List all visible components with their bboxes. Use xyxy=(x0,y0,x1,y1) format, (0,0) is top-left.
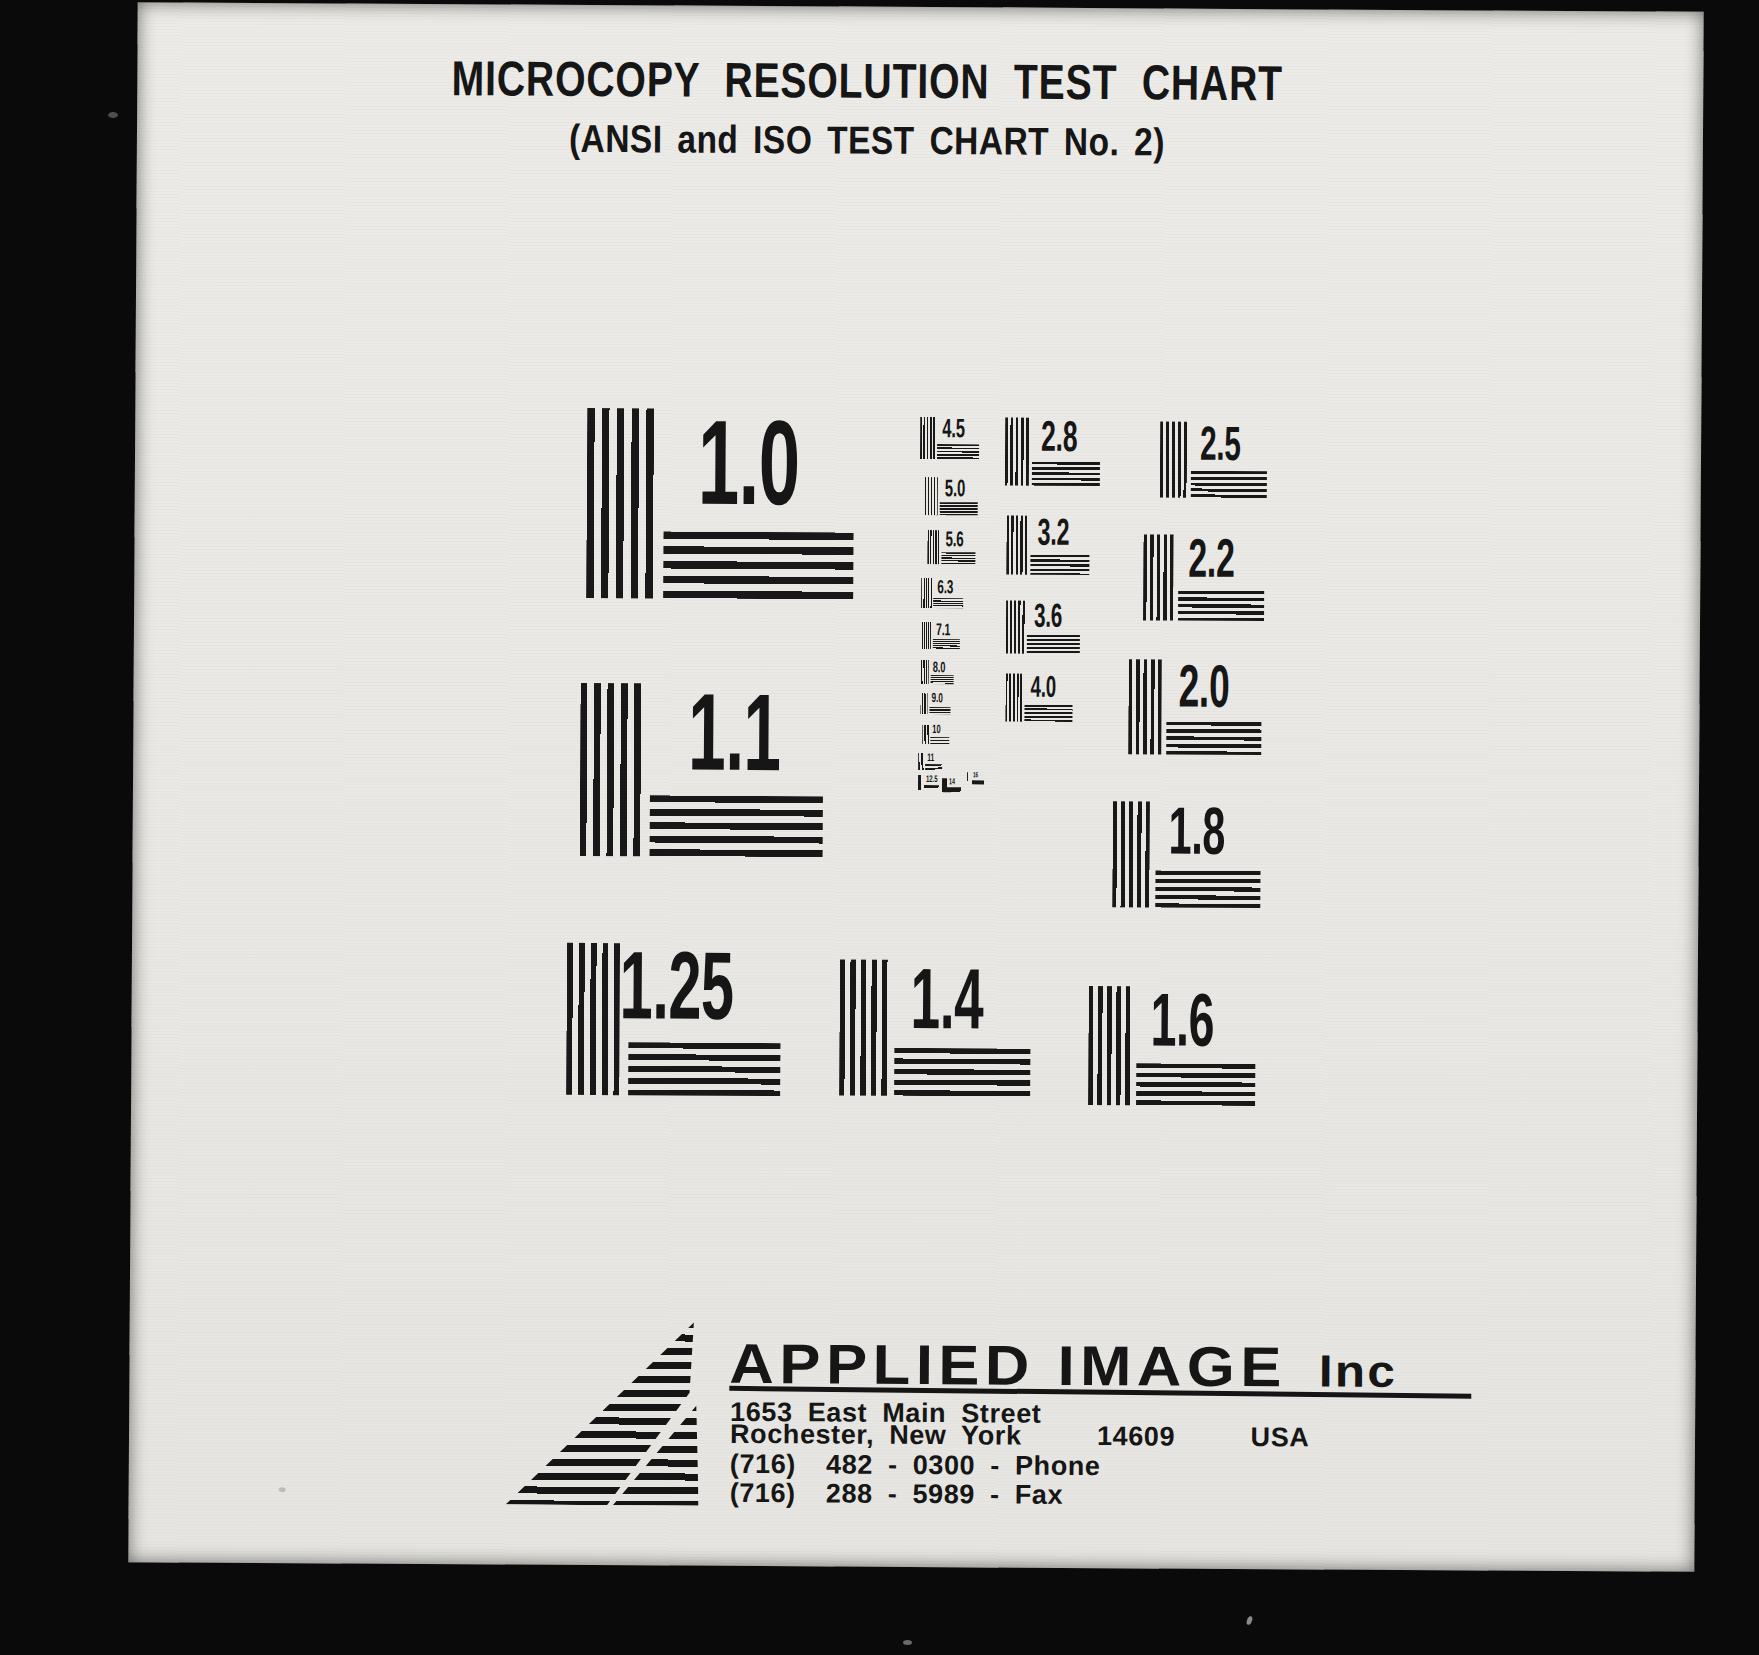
scan-speck xyxy=(279,1487,286,1492)
vertical-bars xyxy=(839,960,887,1096)
pattern-1-6: 1.6 xyxy=(1088,986,1256,1106)
vertical-bars xyxy=(1006,601,1025,654)
phone-number: (716) 482 - 0300 - Phone xyxy=(730,1449,1101,1482)
pattern-label: 4.0 xyxy=(1031,675,1057,700)
scanned-test-chart: { "header": { "title": "MICROCOPY RESOLU… xyxy=(0,0,1759,1655)
horizontal-bars xyxy=(933,639,960,649)
page-title: MICROCOPY RESOLUTION TEST CHART xyxy=(283,49,1451,112)
paper-sheet: MICROCOPY RESOLUTION TEST CHART (ANSI an… xyxy=(128,2,1704,1572)
scan-speck xyxy=(1246,1615,1254,1625)
pattern-label: 9.0 xyxy=(932,694,943,705)
pattern-2-8: 2.8 xyxy=(1005,418,1101,486)
vertical-bars xyxy=(921,660,929,684)
horizontal-bars xyxy=(925,764,942,770)
pattern-1-1: 1.1 xyxy=(580,683,824,857)
horizontal-bars xyxy=(1191,471,1267,498)
scan-speck xyxy=(108,112,118,118)
pattern-1-0: 1.0 xyxy=(586,408,855,600)
pattern-2-5: 2.5 xyxy=(1160,421,1268,498)
vertical-bars xyxy=(566,943,620,1095)
pattern-label: 1.25 xyxy=(620,946,734,1025)
vertical-bars xyxy=(580,683,642,856)
vertical-bars xyxy=(967,772,971,784)
vertical-bars xyxy=(918,775,923,790)
address-city: Rochester, New York 14609 USA xyxy=(730,1419,1310,1454)
pattern-label: 14 xyxy=(949,778,955,785)
pattern-label: 3.6 xyxy=(1034,602,1062,629)
pattern-7-1: 7.1 xyxy=(922,622,960,649)
horizontal-bars xyxy=(930,737,949,744)
pattern-5-6: 5.6 xyxy=(927,530,975,564)
pattern-4-5: 4.5 xyxy=(920,417,980,460)
pattern-12-5: 12.5 xyxy=(918,775,939,790)
pattern-2-2: 2.2 xyxy=(1143,534,1265,621)
pattern-label: 16 xyxy=(973,773,978,779)
vertical-bars xyxy=(922,622,932,649)
horizontal-bars xyxy=(930,676,954,684)
pattern-label: 1.8 xyxy=(1168,804,1225,859)
pattern-8-0: 8.0 xyxy=(921,660,955,684)
pattern-label: 2.2 xyxy=(1189,537,1235,582)
pattern-3-2: 3.2 xyxy=(1006,516,1090,576)
horizontal-bars xyxy=(894,1048,1030,1096)
horizontal-bars xyxy=(628,1042,780,1096)
pattern-1-8: 1.8 xyxy=(1112,801,1261,907)
vertical-bars xyxy=(921,578,932,608)
vertical-bars xyxy=(1088,986,1130,1105)
pattern-label: 4.5 xyxy=(942,418,965,440)
horizontal-bars xyxy=(1027,635,1080,654)
vertical-bars xyxy=(920,417,935,459)
vertical-bars xyxy=(927,530,939,564)
vertical-bars xyxy=(1005,674,1022,722)
horizontal-bars xyxy=(937,445,979,460)
pattern-10: 10 xyxy=(922,725,949,744)
horizontal-bars xyxy=(929,707,950,715)
company-name-suffix: Inc xyxy=(1287,1345,1397,1397)
pattern-11: 11 xyxy=(918,753,942,770)
pattern-6-3: 6.3 xyxy=(921,578,964,608)
horizontal-bars xyxy=(1025,705,1073,722)
vertical-bars xyxy=(918,753,924,770)
vertical-bars xyxy=(1160,421,1187,497)
pattern-label: 5.6 xyxy=(945,531,963,549)
pattern-label: 2.0 xyxy=(1178,662,1229,711)
vertical-bars xyxy=(1112,801,1150,907)
pattern-14: 14 xyxy=(942,778,961,792)
pattern-2-0: 2.0 xyxy=(1128,659,1262,755)
horizontal-bars xyxy=(1136,1063,1255,1105)
vertical-bars xyxy=(1006,516,1027,576)
applied-image-logo-icon xyxy=(504,1319,700,1505)
pattern-label: 1.0 xyxy=(698,413,800,512)
pattern-label: 7.1 xyxy=(936,623,950,637)
vertical-bars xyxy=(920,693,928,714)
horizontal-bars xyxy=(1030,554,1090,575)
pattern-label: 1.1 xyxy=(688,687,781,777)
horizontal-bars xyxy=(972,780,984,784)
horizontal-bars xyxy=(933,598,963,609)
pattern-4-0: 4.0 xyxy=(1005,674,1072,722)
pattern-5-0: 5.0 xyxy=(925,477,979,515)
pattern-3-6: 3.6 xyxy=(1006,601,1081,654)
pattern-label: 10 xyxy=(932,726,940,736)
vertical-bars xyxy=(942,778,947,792)
pattern-label: 3.2 xyxy=(1038,517,1070,548)
vertical-bars xyxy=(1143,534,1174,621)
pattern-label: 5.0 xyxy=(945,478,965,498)
horizontal-bars xyxy=(1167,721,1262,755)
horizontal-bars xyxy=(1178,591,1265,622)
chart-header: MICROCOPY RESOLUTION TEST CHART (ANSI an… xyxy=(138,2,1598,11)
horizontal-bars xyxy=(1155,870,1261,908)
horizontal-bars xyxy=(663,532,853,600)
vertical-bars xyxy=(586,408,654,598)
pattern-9-0: 9.0 xyxy=(920,693,950,714)
horizontal-bars xyxy=(947,787,961,792)
pattern-label: 2.5 xyxy=(1200,423,1241,463)
pattern-1-25: 1.25 xyxy=(566,943,781,1096)
pattern-label: 1.6 xyxy=(1151,989,1215,1051)
horizontal-bars xyxy=(650,796,823,858)
vertical-bars xyxy=(1005,418,1029,486)
pattern-label: 8.0 xyxy=(933,661,946,673)
pattern-label: 1.4 xyxy=(911,963,984,1034)
horizontal-bars xyxy=(924,785,939,790)
page-subtitle: (ANSI and ISO TEST CHART No. 2) xyxy=(239,115,1495,167)
horizontal-bars xyxy=(1032,462,1100,486)
pattern-label: 11 xyxy=(927,753,934,762)
fax-number: (716) 288 - 5989 - Fax xyxy=(730,1478,1064,1511)
horizontal-bars xyxy=(941,552,975,564)
horizontal-bars xyxy=(940,502,978,516)
vertical-bars xyxy=(922,725,929,744)
vertical-bars xyxy=(1128,659,1162,754)
pattern-label: 6.3 xyxy=(937,579,953,595)
vertical-bars xyxy=(925,477,939,515)
scan-speck xyxy=(903,1640,912,1645)
pattern-label: 12.5 xyxy=(926,775,937,783)
pattern-label: 2.8 xyxy=(1041,419,1077,454)
pattern-16: 16 xyxy=(967,772,984,784)
pattern-1-4: 1.4 xyxy=(839,960,1031,1097)
